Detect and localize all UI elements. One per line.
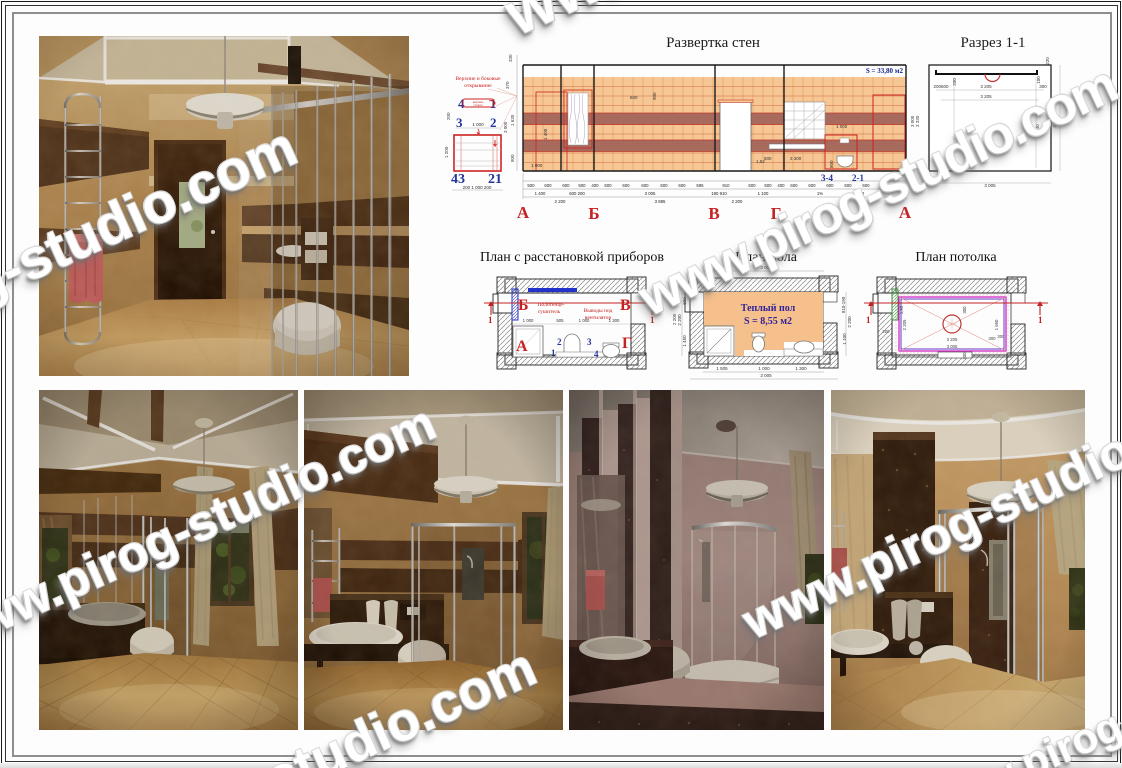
svg-text:1 100: 1 100	[842, 333, 847, 345]
svg-text:План с расстановкой приборов: План с расстановкой приборов	[480, 250, 664, 265]
svg-text:600: 600	[678, 183, 686, 188]
svg-text:600: 600	[641, 183, 649, 188]
svg-text:1 650: 1 650	[994, 319, 999, 330]
svg-text:910: 910	[722, 183, 730, 188]
svg-text:300: 300	[962, 352, 967, 360]
svg-text:В: В	[620, 297, 631, 314]
svg-text:2 200: 2 200	[847, 316, 852, 328]
svg-text:открывание: открывание	[464, 83, 492, 89]
svg-text:600: 600	[790, 183, 798, 188]
svg-text:2 200: 2 200	[732, 199, 743, 204]
svg-text:Г: Г	[622, 335, 632, 352]
svg-text:600: 600	[544, 183, 552, 188]
svg-text:500: 500	[764, 156, 772, 161]
svg-text:3 205: 3 205	[947, 337, 958, 342]
svg-text:сушитель: сушитель	[538, 309, 561, 315]
svg-text:370: 370	[505, 81, 510, 89]
svg-text:В: В	[708, 204, 719, 223]
svg-text:200600: 200600	[933, 84, 949, 89]
svg-text:400: 400	[777, 183, 785, 188]
svg-text:300: 300	[997, 334, 1005, 339]
svg-text:3 005: 3 005	[984, 183, 996, 188]
svg-text:190 910: 190 910	[711, 191, 727, 196]
svg-text:3 300: 3 300	[790, 156, 802, 161]
svg-text:3 005: 3 005	[947, 344, 958, 349]
svg-text:2 200: 2 200	[555, 199, 566, 204]
svg-text:505: 505	[556, 318, 564, 323]
svg-text:595: 595	[696, 183, 704, 188]
svg-text:1: 1	[551, 348, 556, 358]
svg-text:1 300: 1 300	[795, 366, 807, 371]
svg-text:S = 8,55 м2: S = 8,55 м2	[744, 316, 792, 327]
svg-text:330: 330	[952, 78, 957, 86]
svg-text:3 005: 3 005	[760, 373, 772, 378]
svg-text:2 205: 2 205	[902, 319, 907, 330]
svg-text:3 205: 3 205	[980, 94, 992, 99]
svg-text:1 630: 1 630	[510, 114, 515, 126]
svg-text:1,95: 1,95	[899, 305, 904, 314]
svg-text:Развертка стен: Развертка стен	[666, 35, 760, 51]
svg-text:2: 2	[557, 337, 562, 347]
svg-text:Верхние и боковые: Верхние и боковые	[455, 75, 501, 82]
svg-text:500: 500	[527, 183, 535, 188]
svg-text:600: 600	[748, 183, 756, 188]
svg-text:1 505: 1 505	[716, 366, 728, 371]
svg-text:1 000: 1 000	[579, 318, 590, 323]
svg-text:600: 600	[660, 183, 668, 188]
svg-text:1: 1	[866, 315, 871, 325]
svg-text:400: 400	[591, 183, 599, 188]
svg-text:910-190: 910-190	[841, 296, 846, 313]
svg-text:1 400: 1 400	[535, 191, 546, 196]
svg-text:500: 500	[578, 183, 586, 188]
svg-text:Теплый пол: Теплый пол	[741, 303, 796, 314]
svg-text:А: А	[517, 203, 530, 222]
svg-text:3 005: 3 005	[645, 191, 656, 196]
svg-text:1: 1	[488, 315, 493, 325]
svg-text:1 450: 1 450	[682, 335, 687, 347]
svg-text:План потолка: План потолка	[915, 250, 997, 265]
svg-text:Выводы под: Выводы под	[584, 308, 613, 314]
svg-text:600 200: 600 200	[569, 191, 585, 196]
svg-text:200: 200	[882, 329, 890, 334]
svg-text:1 300: 1 300	[609, 318, 620, 323]
svg-text:800: 800	[510, 154, 515, 162]
svg-text:1 100: 1 100	[758, 191, 769, 196]
svg-text:1 000: 1 000	[531, 163, 543, 168]
svg-text:600: 600	[604, 183, 612, 188]
svg-text:3 330: 3 330	[915, 115, 920, 127]
svg-text:1 000: 1 000	[758, 366, 770, 371]
svg-text:500: 500	[764, 183, 772, 188]
svg-text:А: А	[516, 338, 528, 355]
svg-text:330: 330	[508, 54, 513, 62]
svg-text:4: 4	[594, 349, 599, 359]
svg-text:200: 200	[446, 112, 451, 120]
svg-text:Б: Б	[588, 204, 599, 223]
svg-text:800: 800	[829, 160, 834, 168]
svg-text:Полотенце-: Полотенце-	[537, 302, 564, 308]
svg-text:3 885: 3 885	[655, 199, 666, 204]
svg-text:1 400: 1 400	[543, 128, 548, 140]
svg-text:2: 2	[490, 115, 497, 130]
svg-text:300: 300	[962, 306, 967, 314]
svg-text:220: 220	[1045, 57, 1050, 65]
svg-text:стекло: стекло	[474, 103, 483, 107]
svg-text:1 200: 1 200	[444, 146, 449, 158]
svg-text:3 205: 3 205	[980, 84, 992, 89]
svg-text:Б: Б	[518, 297, 529, 314]
svg-text:300: 300	[988, 336, 996, 341]
svg-text:1 000: 1 000	[523, 318, 534, 323]
svg-text:4: 4	[458, 96, 465, 111]
svg-text:1 000: 1 000	[836, 124, 848, 129]
svg-text:Разрез 1-1: Разрез 1-1	[961, 35, 1026, 51]
svg-text:600: 600	[622, 183, 630, 188]
svg-text:1: 1	[1038, 315, 1043, 325]
svg-text:3 000: 3 000	[503, 121, 508, 133]
svg-text:900: 900	[652, 92, 657, 100]
svg-text:3: 3	[456, 115, 463, 130]
svg-text:S = 33,80 м2: S = 33,80 м2	[866, 67, 904, 75]
svg-text:3: 3	[587, 337, 592, 347]
svg-text:200 1 000 200: 200 1 000 200	[463, 185, 492, 190]
svg-text:600: 600	[562, 183, 570, 188]
svg-text:1 000: 1 000	[472, 122, 484, 127]
svg-text:600: 600	[630, 95, 638, 100]
